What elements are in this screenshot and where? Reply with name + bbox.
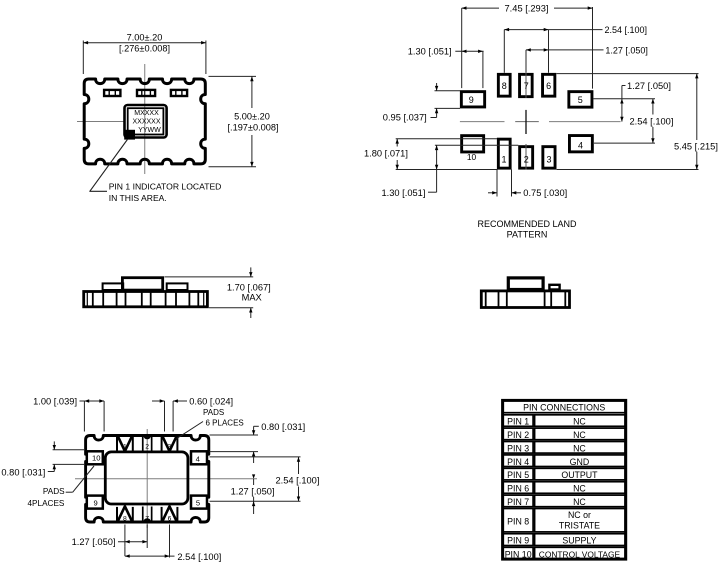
svg-text:1.70 [.067]: 1.70 [.067]	[227, 282, 271, 292]
svg-text:[.197±0.008]: [.197±0.008]	[227, 123, 278, 133]
svg-text:PIN 9: PIN 9	[507, 536, 529, 546]
svg-text:1.27 [.050]: 1.27 [.050]	[627, 81, 671, 91]
svg-text:NC: NC	[573, 484, 586, 494]
svg-text:PIN CONNECTIONS: PIN CONNECTIONS	[523, 402, 605, 412]
svg-text:1: 1	[501, 155, 506, 165]
svg-text:1: 1	[123, 443, 127, 450]
svg-text:XXXXXX: XXXXXX	[132, 118, 160, 125]
svg-text:YYWW: YYWW	[138, 127, 161, 134]
svg-text:PADS: PADS	[203, 408, 224, 417]
svg-text:0.80 [.031]: 0.80 [.031]	[261, 422, 305, 432]
svg-text:8: 8	[502, 81, 507, 91]
svg-text:PIN 8: PIN 8	[507, 516, 529, 526]
svg-text:PATTERN: PATTERN	[507, 230, 548, 240]
svg-text:2.54 [.100]: 2.54 [.100]	[630, 117, 674, 127]
svg-text:2: 2	[145, 443, 149, 450]
svg-text:0.60 [.024]: 0.60 [.024]	[189, 396, 233, 406]
svg-text:MAX: MAX	[242, 293, 262, 303]
svg-text:1.27 [.050]: 1.27 [.050]	[231, 486, 275, 496]
svg-text:2.54 [.100]: 2.54 [.100]	[605, 25, 648, 35]
svg-text:SUPPLY: SUPPLY	[562, 536, 596, 546]
svg-text:8: 8	[123, 516, 127, 523]
svg-text:5: 5	[578, 95, 583, 105]
svg-text:PIN 1 INDICATOR LOCATED: PIN 1 INDICATOR LOCATED	[109, 182, 222, 192]
svg-text:6: 6	[546, 81, 551, 91]
svg-text:PADS: PADS	[43, 487, 65, 496]
svg-text:1.80 [.071]: 1.80 [.071]	[364, 148, 408, 158]
svg-text:7: 7	[145, 516, 149, 523]
svg-text:0.75 [.030]: 0.75 [.030]	[523, 188, 567, 198]
svg-text:7.00±.20: 7.00±.20	[127, 32, 163, 42]
svg-text:4PLACES: 4PLACES	[28, 499, 65, 508]
svg-text:NC: NC	[573, 443, 586, 453]
svg-text:5.00±.20: 5.00±.20	[234, 112, 270, 122]
svg-text:10: 10	[92, 454, 100, 463]
svg-text:OUTPUT: OUTPUT	[561, 470, 598, 480]
svg-text:2.54 [.100]: 2.54 [.100]	[276, 476, 320, 486]
svg-text:PIN 10: PIN 10	[505, 549, 532, 559]
svg-text:MXXXX: MXXXX	[134, 110, 159, 117]
svg-text:0.95 [.037]: 0.95 [.037]	[383, 113, 427, 123]
svg-text:NC or: NC or	[568, 510, 591, 520]
svg-text:NC: NC	[573, 430, 586, 440]
svg-text:7.45 [.293]: 7.45 [.293]	[505, 4, 549, 14]
svg-text:PIN 5: PIN 5	[507, 470, 529, 480]
svg-text:TRISTATE: TRISTATE	[559, 521, 600, 531]
svg-text:[.276±0.008]: [.276±0.008]	[119, 43, 170, 53]
svg-text:1.27 [.050]: 1.27 [.050]	[605, 45, 648, 55]
svg-text:3: 3	[168, 443, 172, 450]
svg-text:IN THIS AREA.: IN THIS AREA.	[109, 193, 167, 203]
svg-text:1.30 [.051]: 1.30 [.051]	[382, 188, 426, 198]
svg-text:6 PLACES: 6 PLACES	[206, 419, 244, 428]
svg-text:PIN 2: PIN 2	[507, 430, 529, 440]
svg-text:10: 10	[467, 152, 477, 162]
svg-text:7: 7	[524, 81, 529, 91]
svg-text:4: 4	[196, 454, 200, 463]
svg-text:5: 5	[196, 498, 200, 507]
svg-text:NC: NC	[573, 417, 586, 427]
svg-text:9: 9	[469, 95, 474, 105]
svg-text:PIN 4: PIN 4	[507, 457, 529, 467]
svg-text:2.54 [.100]: 2.54 [.100]	[177, 552, 221, 562]
svg-text:PIN 7: PIN 7	[507, 497, 529, 507]
svg-text:1.30 [.051]: 1.30 [.051]	[408, 47, 452, 57]
svg-text:1.00 [.039]: 1.00 [.039]	[33, 396, 77, 406]
svg-text:5.45 [.215]: 5.45 [.215]	[674, 142, 718, 152]
svg-text:2: 2	[524, 155, 529, 165]
svg-text:9: 9	[93, 498, 97, 507]
svg-text:3: 3	[546, 155, 551, 165]
svg-text:PIN 3: PIN 3	[507, 443, 529, 453]
svg-text:CONTROL VOLTAGE: CONTROL VOLTAGE	[539, 549, 621, 559]
svg-text:0.80 [.031]: 0.80 [.031]	[1, 468, 45, 478]
svg-text:4: 4	[578, 140, 583, 150]
svg-text:NC: NC	[573, 497, 586, 507]
svg-text:GND: GND	[570, 457, 590, 467]
svg-text:PIN 6: PIN 6	[507, 484, 529, 494]
svg-text:6: 6	[168, 516, 172, 523]
svg-text:1.27 [.050]: 1.27 [.050]	[72, 537, 116, 547]
svg-text:RECOMMENDED LAND: RECOMMENDED LAND	[477, 219, 577, 229]
svg-text:PIN 1: PIN 1	[507, 417, 529, 427]
